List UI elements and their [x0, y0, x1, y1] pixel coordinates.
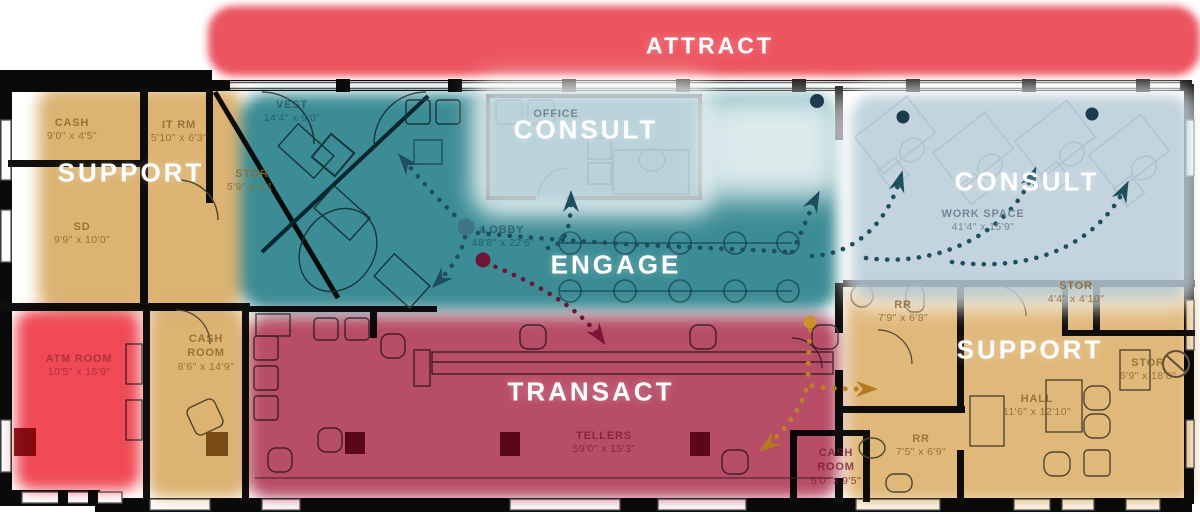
room-label-work-space: WORK SPACE41'4" x 15'9" [942, 207, 1025, 235]
support-corridor-path [808, 330, 810, 382]
support-east-path [812, 386, 872, 389]
zone-label-consult-right: CONSULT [955, 167, 1100, 198]
branch-floorplan-diagram: ATTRACT SUPPORT CONSULT ENGAGE CONSULT T… [0, 0, 1200, 514]
room-label-stor-left: STOR5'9" x 9'1" [227, 167, 277, 195]
zone-label-consult-left: CONSULT [514, 115, 659, 146]
support-cashroom-path [764, 390, 806, 448]
room-label-cash-room-left: CASH ROOM8'6" x 14'9" [174, 332, 238, 374]
zone-label-transact: TRANSACT [508, 377, 675, 408]
room-label-stor-3: STOR6'9" x 18'0" [1120, 356, 1177, 384]
workspace-arc-2 [812, 176, 901, 256]
room-label-vest: VEST14'4" x 9'0" [264, 98, 321, 126]
zone-label-support-right: SUPPORT [957, 335, 1104, 366]
consult-station-dot [1086, 108, 1099, 121]
room-label-cash: CASH9'0" x 4'5" [47, 116, 97, 144]
zone-label-engage: ENGAGE [551, 250, 682, 281]
room-label-atm-room: ATM ROOM10'5" x 15'9" [46, 352, 113, 380]
room-label-rr-2: RR7'5" x 6'9" [896, 432, 946, 460]
engage-to-tellers-path [436, 237, 465, 284]
room-label-cash-room-right: CASH ROOM5'0" x 9'5" [804, 446, 868, 488]
room-label-rr-1: RR7'9" x 6'8" [878, 298, 928, 326]
room-label-lobby: LOBBY48'8" x 22'6" [472, 223, 535, 251]
room-label-hall: HALL11'6" x 12'10" [1003, 392, 1071, 420]
room-label-tellers: TELLERS59'0" x 15'3" [573, 429, 636, 457]
consult-station-dot [897, 111, 910, 124]
room-label-it-rm: IT RM5'10" x 6'3" [151, 118, 208, 146]
support-origin-dot [804, 316, 817, 329]
zone-label-attract: ATTRACT [646, 33, 774, 60]
engage-to-offices-path [402, 158, 462, 222]
room-label-sd: SD9'9" x 10'0" [54, 220, 111, 248]
zone-label-support-left: SUPPORT [58, 158, 205, 189]
transact-origin-dot [476, 253, 491, 268]
room-label-stor-2: STOR4'4" x 4'10" [1048, 279, 1105, 307]
workspace-arc-1 [792, 196, 817, 252]
consult-station-dot [810, 94, 824, 108]
